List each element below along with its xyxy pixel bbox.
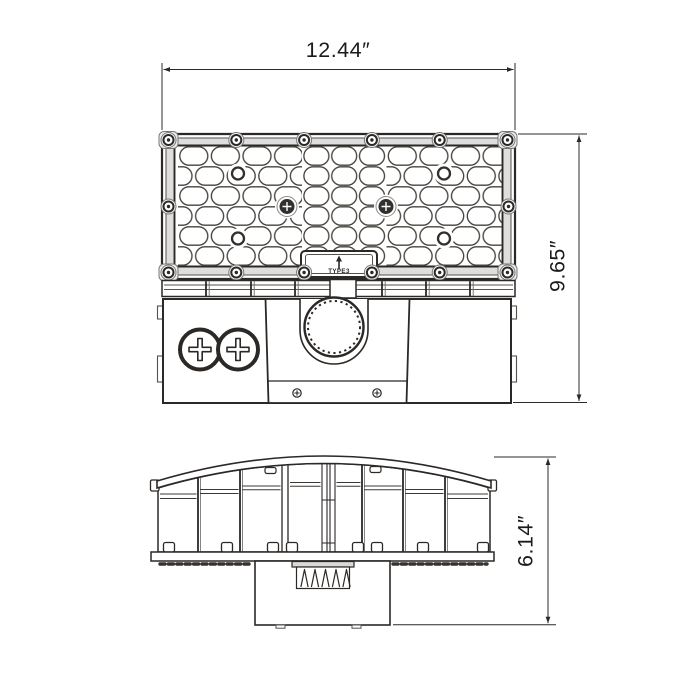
terminal-fins-icon (292, 562, 354, 589)
dim-top-height: 9.65″ (513, 134, 587, 403)
dim-height-label: 9.65″ (546, 240, 570, 292)
side-view: 6.14″ (151, 456, 557, 628)
screw-icon (364, 265, 379, 280)
screw-icon (297, 133, 312, 148)
type-tag-label: TYPE3 (328, 268, 350, 275)
screw-icon (501, 199, 516, 214)
screw-icon (161, 265, 176, 280)
screw-icon (229, 265, 244, 280)
screw-icon (432, 133, 447, 148)
phillips-screw-icon (275, 195, 299, 219)
driver-box (255, 561, 390, 628)
screw-icon (297, 265, 312, 280)
led-fixture-dimension-drawing: TYPE3 (0, 0, 700, 700)
photocell-port-icon (305, 298, 364, 357)
hinge-strip (162, 280, 515, 299)
hinge-pin-cover (330, 280, 356, 299)
ring-hole-icon (232, 168, 244, 180)
top-view: TYPE3 (158, 38, 588, 403)
dim-top-width: 12.44″ (162, 38, 515, 130)
rear-housing (158, 298, 517, 404)
screw-icon (500, 133, 515, 148)
phillips-screw-icon (374, 195, 398, 219)
screw-icon (500, 265, 515, 280)
lens-array (178, 146, 502, 266)
dim-depth-label: 6.14″ (514, 515, 538, 567)
ring-hole-icon (438, 168, 450, 180)
screw-icon (161, 199, 176, 214)
lens-module-center (303, 146, 387, 266)
lid-screw-boss (265, 468, 276, 474)
box-foot (352, 625, 361, 628)
ring-hole-icon (232, 233, 244, 245)
screw-icon (161, 133, 176, 148)
heatsink-body (158, 464, 490, 553)
cross-knob-icon (180, 330, 220, 370)
screw-icon (293, 389, 301, 397)
lid-screw-boss (370, 467, 381, 473)
screw-icon (229, 133, 244, 148)
screw-icon (364, 133, 379, 148)
gear-box (266, 298, 410, 404)
box-foot (276, 625, 285, 628)
screw-icon (432, 265, 447, 280)
dimension-drawing-page: TYPE3 (0, 0, 700, 700)
ring-hole-icon (438, 233, 450, 245)
dim-width-label: 12.44″ (306, 38, 370, 62)
cross-knob-icon (218, 330, 258, 370)
screw-icon (373, 389, 381, 397)
